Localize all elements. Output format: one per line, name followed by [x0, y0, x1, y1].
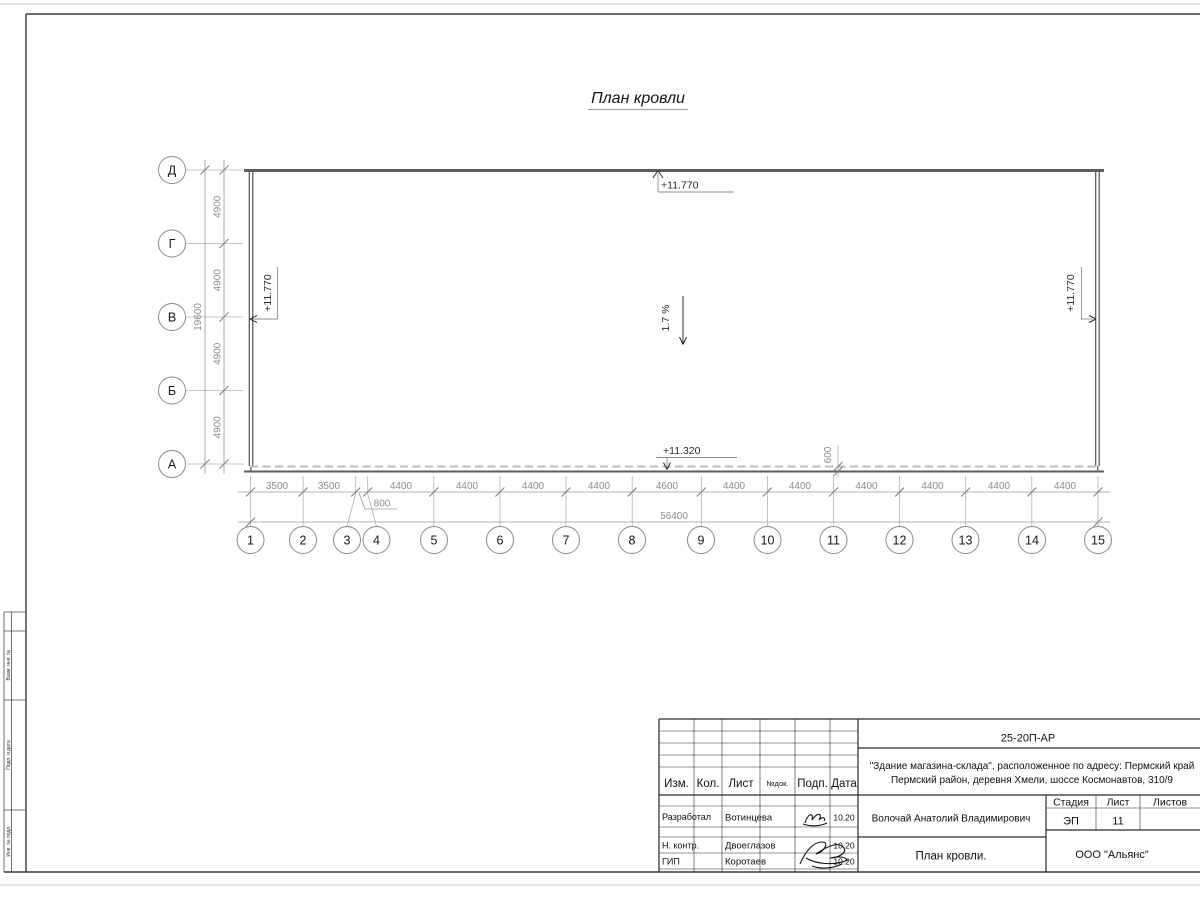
dim-col-span-0: 3500: [266, 481, 289, 492]
axis-label-3: 3: [344, 534, 351, 548]
dim-row-span-2: 4900: [213, 342, 224, 365]
dim-row-span-3: 4900: [213, 416, 224, 439]
dim-col-span-12: 4400: [988, 481, 1011, 492]
left-margin-stamp: Взам. инв. № Подп. и дата Инв. № подл.: [4, 612, 26, 872]
project-address-line1: "Здание магазина-склада", расположенное …: [870, 761, 1195, 772]
dim-col-span-13: 4400: [1054, 481, 1077, 492]
company-name: ООО "Альянс": [1075, 849, 1149, 861]
client-name: Волочай Анатолий Владимирович: [872, 814, 1031, 825]
axis-label-A: А: [168, 458, 177, 472]
dim-col-span-11: 4400: [921, 481, 944, 492]
col-list: Лист: [729, 778, 755, 790]
stage-value: ЭП: [1063, 816, 1079, 828]
col-kol: Кол.: [697, 778, 720, 790]
person-role-0: Разработал: [662, 812, 711, 822]
col-date: Дата: [831, 778, 857, 790]
signature-votintseva: [803, 814, 827, 825]
dim-col-span-7: 4600: [656, 481, 679, 492]
margin-label-inv: Инв. № подл.: [6, 825, 12, 856]
axis-label-1: 1: [247, 534, 254, 548]
stage-label: Стадия: [1053, 797, 1089, 809]
axis-label-D: Д: [168, 164, 177, 178]
row-axes: 19600 4900 4900 4900 4900 Д Г В Б А: [159, 157, 244, 478]
axis-label-10: 10: [761, 534, 775, 548]
axis-label-7: 7: [563, 534, 570, 548]
elev-eave-value: +11.320: [663, 445, 701, 457]
axis-label-13: 13: [959, 534, 973, 548]
doc-code: 25-20П-АР: [1001, 733, 1055, 745]
roof-plan-sheet-svg: Взам. инв. № Подп. и дата Инв. № подл. П…: [0, 0, 1200, 900]
dim-row-span-0: 4900: [213, 195, 224, 218]
person-name-0: Вотинцева: [725, 813, 773, 824]
sheet-label: Лист: [1107, 797, 1130, 809]
elev-ridge-value: +11.770: [661, 180, 699, 192]
elevation-left: +11.770: [250, 267, 278, 323]
project-address-line2: Пермский район, деревня Хмели, шоссе Кос…: [891, 775, 1173, 786]
person-role-1: Н. контр.: [662, 841, 699, 851]
dim-col-span-5: 4400: [522, 481, 545, 492]
sheet-frame: [0, 4, 1200, 885]
col-izm: Изм.: [664, 778, 689, 790]
axis-label-15: 15: [1091, 534, 1105, 548]
roof-outline: [244, 171, 1104, 472]
dim-col-span-6: 4400: [588, 481, 611, 492]
axis-label-V: В: [168, 311, 176, 325]
drawing-title: План кровли: [588, 90, 688, 110]
col-doc: №док.: [767, 779, 789, 788]
title-block: Изм. Кол. Лист №док. Подп. Дата Разработ…: [659, 719, 1200, 872]
drawing-sheet: Взам. инв. № Подп. и дата Инв. № подл. П…: [0, 0, 1200, 900]
col-axes: 3500 3500 4400 4400 4400 4400 4600 4400 …: [237, 476, 1112, 554]
dim-col-span-3: 4400: [390, 481, 413, 492]
elev-left-value: +11.770: [262, 274, 274, 312]
person-name-1: Двоеглазов: [725, 841, 776, 852]
elev-right-value: +11.770: [1065, 274, 1077, 312]
overhang-value: 600: [823, 446, 834, 463]
slope-annotation: 1.7 %: [660, 296, 687, 345]
axis-label-5: 5: [431, 534, 438, 548]
axis-label-9: 9: [698, 534, 705, 548]
axis-label-8: 8: [629, 534, 636, 548]
page-title: План кровли: [591, 90, 685, 107]
sheet-number: 11: [1112, 816, 1123, 828]
elevation-ridge: +11.770: [653, 171, 734, 193]
col-sign: Подп.: [797, 778, 828, 790]
axis-label-12: 12: [893, 534, 907, 548]
margin-label-podp: Подп. и дата: [6, 740, 12, 770]
margin-label-vzam: Взам. инв. №: [6, 650, 12, 681]
dim-col-span-10: 4400: [855, 481, 878, 492]
axis-label-2: 2: [300, 534, 307, 548]
axis-label-6: 6: [497, 534, 504, 548]
dim-col-span-2: 800: [374, 499, 391, 510]
dim-col-total: 56400: [660, 511, 688, 522]
person-role-2: ГИП: [662, 857, 680, 867]
dim-col-span-4: 4400: [456, 481, 479, 492]
dim-row-total: 19600: [193, 303, 204, 331]
dim-col-span-1: 3500: [318, 481, 341, 492]
elevation-right: +11.770: [1065, 267, 1096, 323]
sheets-label: Листов: [1153, 797, 1188, 809]
axis-label-B: Б: [168, 384, 176, 398]
dim-row-span-1: 4900: [213, 269, 224, 292]
slope-value: 1.7 %: [660, 305, 672, 332]
dim-col-span-8: 4400: [723, 481, 746, 492]
axis-label-4: 4: [373, 534, 380, 548]
axis-label-11: 11: [827, 534, 840, 548]
dim-col-span-9: 4400: [789, 481, 812, 492]
signature-gip: [800, 842, 848, 868]
sheet-name: План кровли.: [916, 851, 987, 863]
person-name-2: Коротаев: [725, 857, 766, 868]
axis-label-14: 14: [1025, 534, 1039, 548]
axis-label-G: Г: [169, 237, 176, 251]
person-date-0: 10.20: [833, 813, 855, 823]
